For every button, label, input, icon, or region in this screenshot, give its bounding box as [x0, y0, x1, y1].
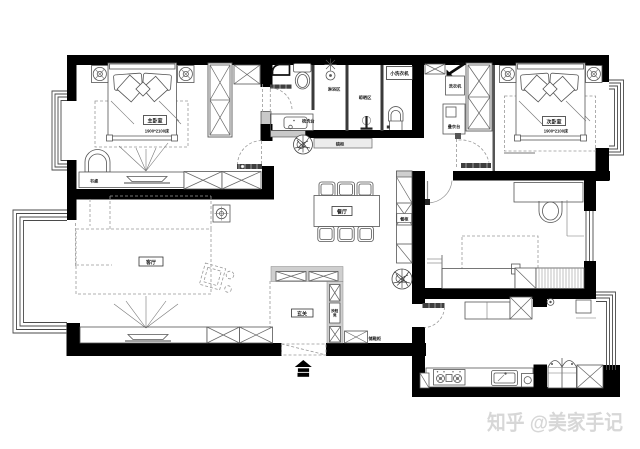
svg-text:1900*2100床: 1900*2100床	[544, 128, 569, 135]
svg-text:换鞋: 换鞋	[331, 308, 339, 313]
svg-text:镜柜: 镜柜	[336, 141, 345, 148]
svg-text:凳: 凳	[332, 313, 337, 318]
svg-text:餐厅: 餐厅	[336, 209, 347, 216]
svg-text:梳洗台: 梳洗台	[301, 118, 315, 125]
svg-text:玄关: 玄关	[297, 310, 307, 317]
svg-text:叠衣台: 叠衣台	[448, 123, 461, 130]
svg-text:客厅: 客厅	[145, 259, 156, 266]
svg-text:储鞋柜: 储鞋柜	[368, 335, 382, 342]
svg-text:洗衣机: 洗衣机	[449, 83, 462, 90]
svg-text:小洗衣机: 小洗衣机	[390, 70, 409, 77]
svg-text:知乎 @美家手记: 知乎 @美家手记	[487, 411, 623, 435]
svg-text:餐柜: 餐柜	[399, 216, 409, 223]
svg-text:淋浴区: 淋浴区	[328, 86, 341, 93]
svg-text:书桌: 书桌	[90, 178, 99, 185]
svg-text:1900*2100床: 1900*2100床	[145, 128, 170, 135]
svg-text:晾晒区: 晾晒区	[359, 94, 372, 101]
svg-text:主卧室: 主卧室	[147, 118, 162, 125]
svg-text:次卧室: 次卧室	[546, 119, 561, 126]
